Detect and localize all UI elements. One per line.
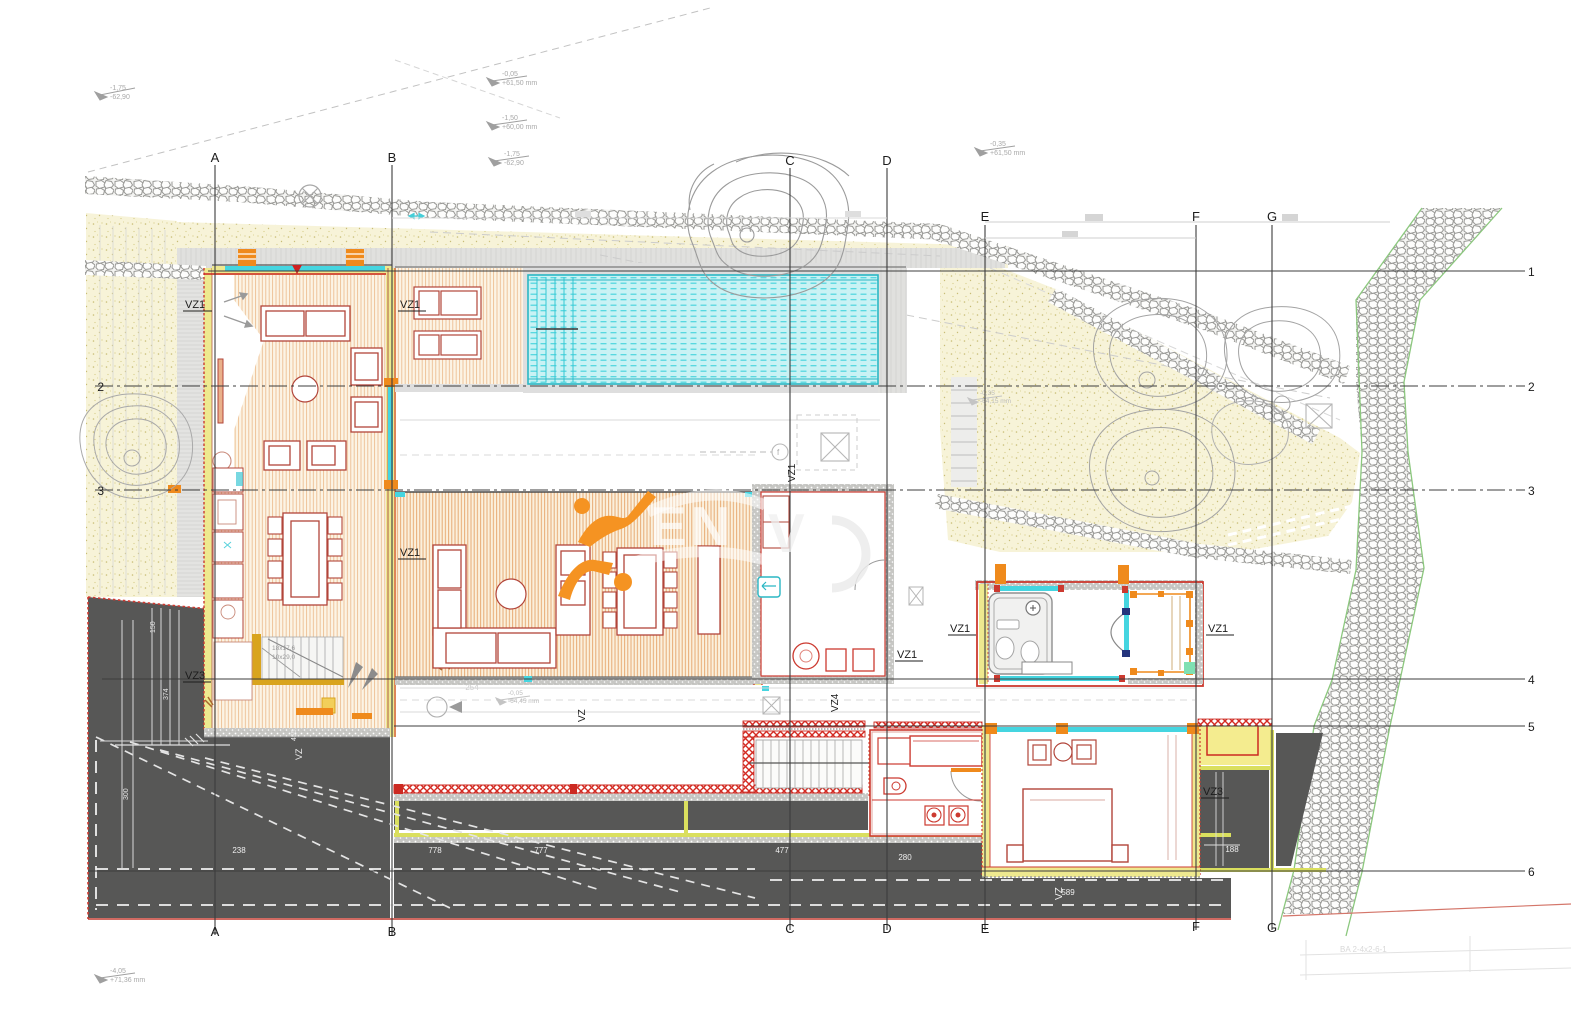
svg-text:188: 188 [1225,845,1239,854]
svg-text:2: 2 [1528,380,1535,394]
svg-text:C: C [785,921,794,936]
svg-text:-62,90: -62,90 [110,94,130,101]
svg-text:B: B [388,924,397,939]
svg-text:-0,35: -0,35 [990,141,1006,148]
svg-text:-0,05: -0,05 [502,71,518,78]
svg-text:777: 777 [534,846,548,855]
svg-text:C: C [785,153,794,168]
svg-text:-0,05: -0,05 [508,690,523,697]
svg-text:4: 4 [1528,673,1535,687]
svg-text:455: 455 [291,729,298,741]
svg-text:F: F [1192,919,1200,934]
svg-text:300: 300 [123,788,130,800]
svg-text:E: E [981,921,990,936]
svg-text:D: D [882,921,891,936]
svg-text:+71,36 mm: +71,36 mm [110,977,145,984]
svg-text:1: 1 [1528,265,1535,279]
svg-text:VZ1: VZ1 [897,649,917,661]
svg-text:EN: EN [650,495,734,557]
svg-text:238: 238 [232,846,246,855]
svg-text:3: 3 [1528,484,1535,498]
svg-text:-62,90: -62,90 [504,160,524,167]
svg-text:BA 2-4x2-6-1: BA 2-4x2-6-1 [1340,945,1387,954]
svg-text:B: B [388,150,397,165]
svg-text:G: G [1267,920,1277,935]
svg-text:VZ1: VZ1 [950,623,970,635]
svg-text:374: 374 [163,688,170,700]
svg-text:-64,45 mm: -64,45 mm [508,698,539,705]
svg-text:-4,05: -4,05 [110,968,126,975]
svg-text:-1,75: -1,75 [504,151,520,158]
svg-text:6: 6 [1528,865,1535,879]
svg-text:VZ1: VZ1 [787,463,798,482]
svg-text:-0,35: -0,35 [980,390,995,397]
svg-text:5: 5 [1528,720,1535,734]
svg-text:V: V [768,502,805,564]
svg-text:3: 3 [97,484,104,498]
svg-text:VZ1: VZ1 [185,299,205,311]
svg-text:VZ: VZ [1054,887,1065,900]
svg-text:477: 477 [775,846,789,855]
svg-text:280: 280 [898,853,912,862]
svg-text:VZ4: VZ4 [830,693,841,712]
svg-text:2: 2 [97,380,104,394]
svg-text:-1,75: -1,75 [110,85,126,92]
svg-text:VZ3: VZ3 [185,670,205,682]
svg-text:18x17,6: 18x17,6 [272,645,296,652]
svg-text:778: 778 [428,846,442,855]
svg-text:VZ1: VZ1 [400,547,420,559]
svg-text:VZ3: VZ3 [1203,786,1223,798]
svg-text:VZ1: VZ1 [1208,623,1228,635]
svg-text:10x29,0: 10x29,0 [272,654,296,661]
svg-text:A: A [211,150,220,165]
svg-text:+61,50 mm: +61,50 mm [990,150,1025,157]
svg-text:A: A [211,924,220,939]
svg-text:VZ: VZ [294,748,304,760]
svg-text:+61,50 mm: +61,50 mm [502,80,537,87]
svg-text:VZ1: VZ1 [400,299,420,311]
svg-text:VZ: VZ [577,709,588,722]
svg-text:-1,50: -1,50 [502,115,518,122]
svg-text:150: 150 [150,621,157,633]
svg-text:+60,00 mm: +60,00 mm [502,124,537,131]
svg-text:D: D [882,153,891,168]
